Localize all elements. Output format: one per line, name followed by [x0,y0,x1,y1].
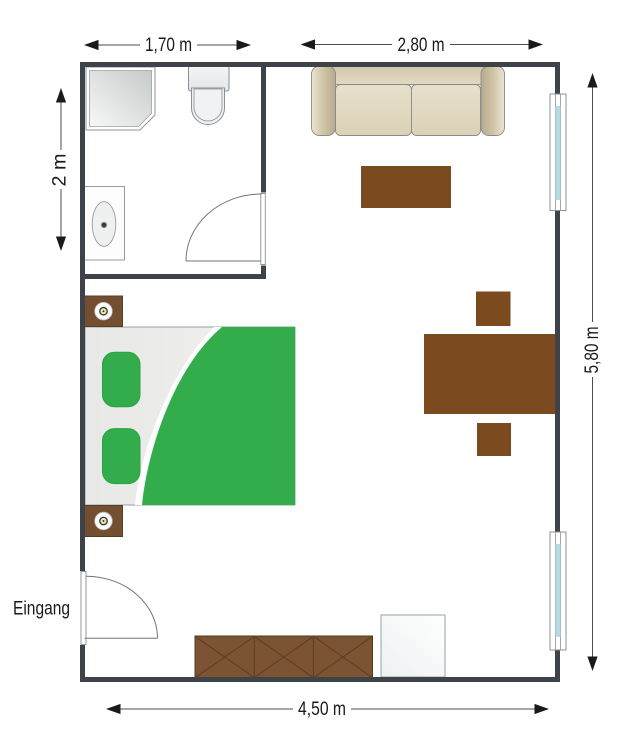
svg-text:4,50 m: 4,50 m [298,699,346,720]
svg-text:5,80 m: 5,80 m [582,327,603,374]
svg-text:2,80 m: 2,80 m [398,35,445,56]
svg-text:Eingang: Eingang [13,598,70,620]
svg-text:1,70 m: 1,70 m [145,35,192,56]
svg-text:2 m: 2 m [50,154,71,187]
